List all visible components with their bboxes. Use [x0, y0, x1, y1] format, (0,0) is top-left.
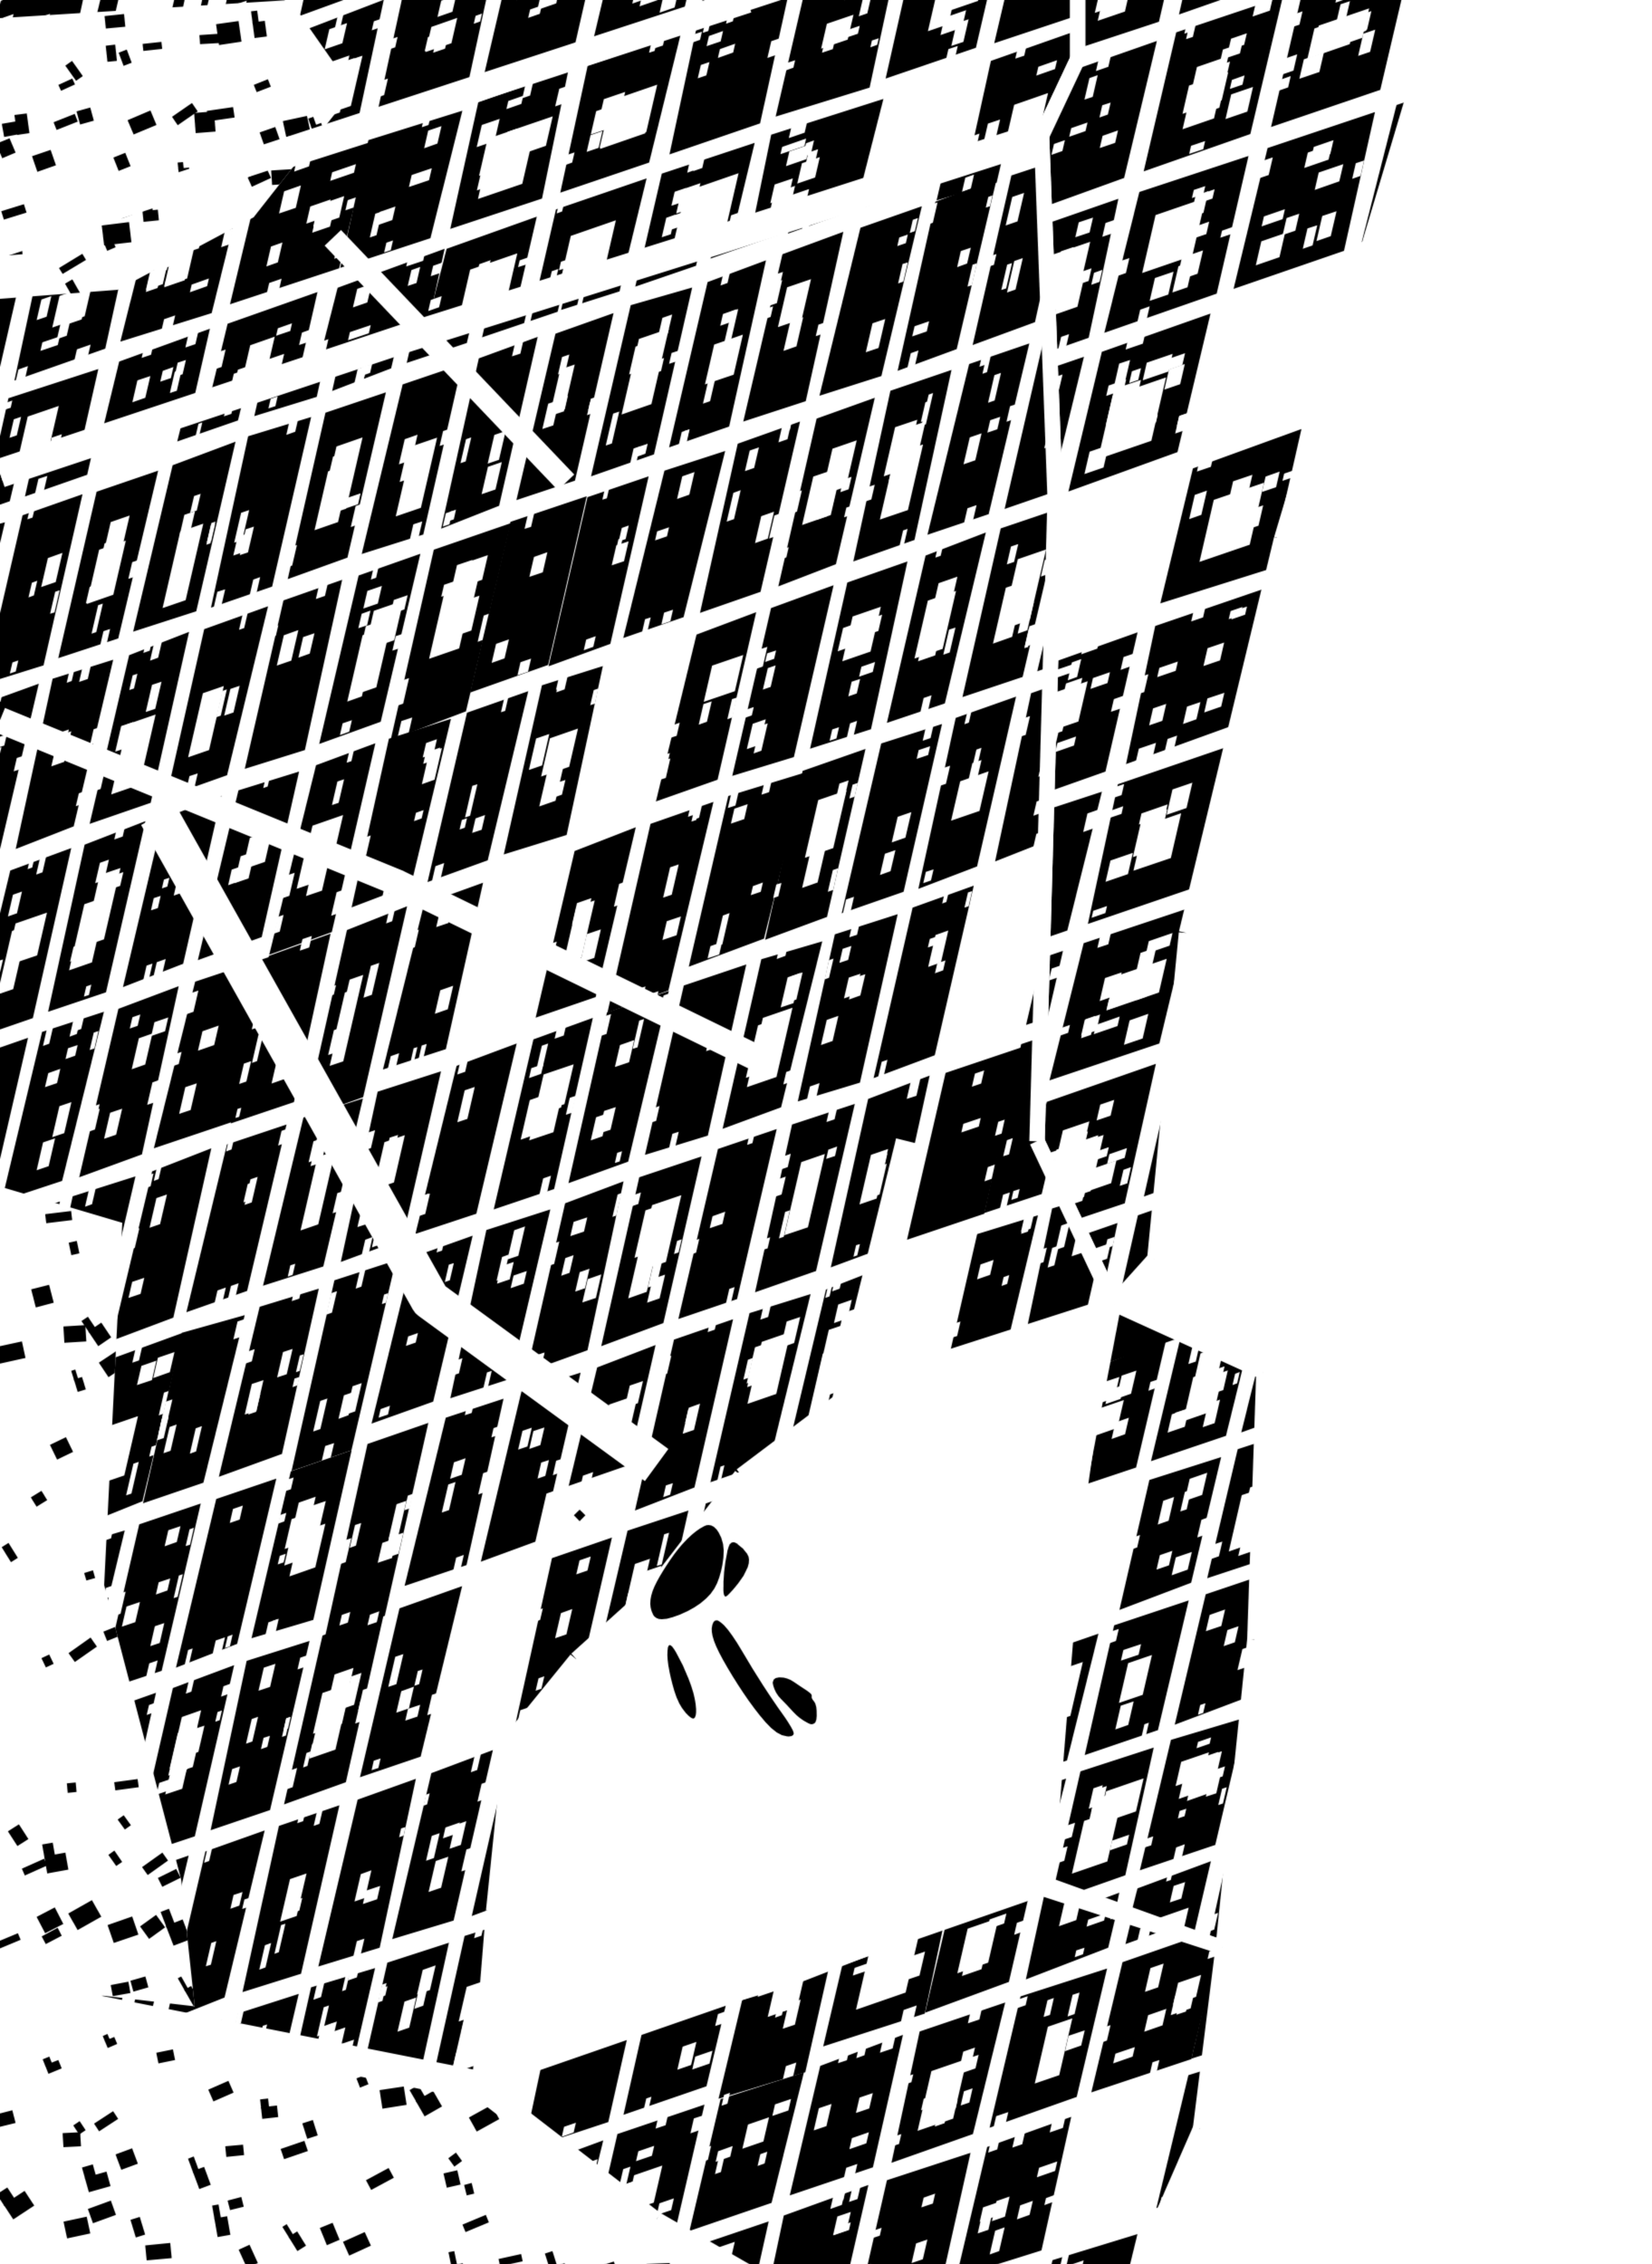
city-map-canvas [0, 0, 1652, 2264]
figure-ground-map [0, 0, 1652, 2264]
